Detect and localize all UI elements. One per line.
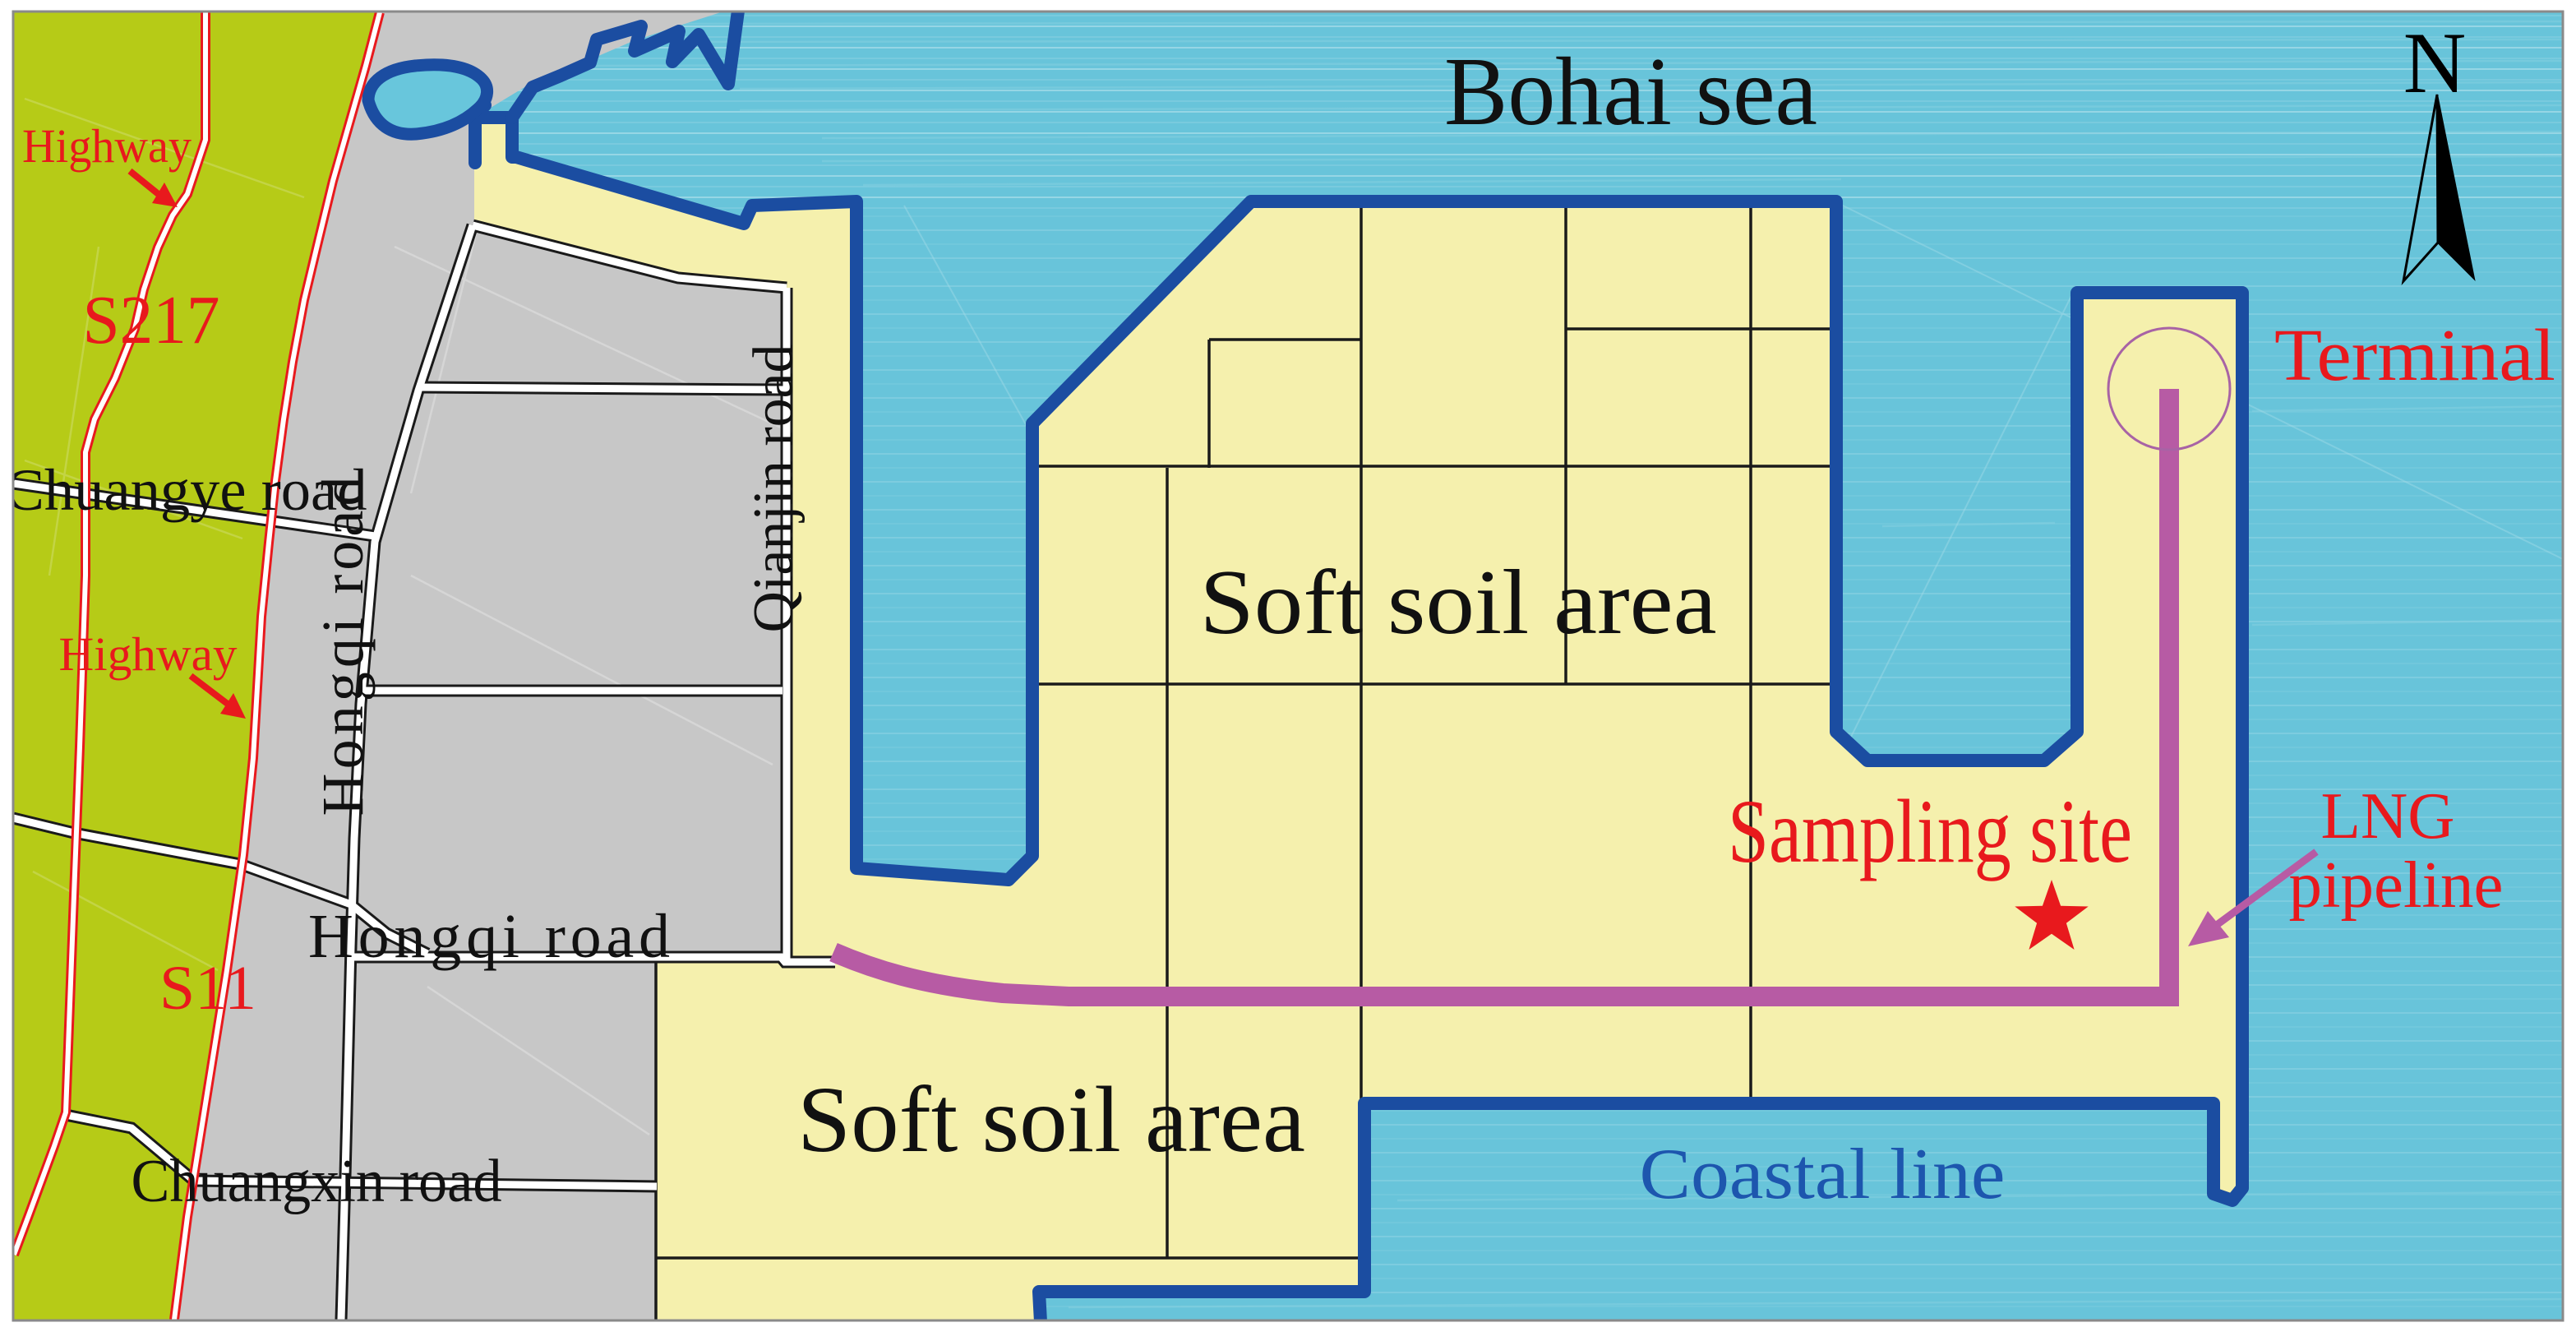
svg-text:Soft soil area: Soft soil area — [797, 1067, 1305, 1172]
svg-text:S217: S217 — [83, 282, 220, 358]
svg-text:Highway: Highway — [59, 627, 238, 681]
svg-text:Hongqi road: Hongqi road — [310, 477, 376, 816]
svg-text:Soft soil area: Soft soil area — [1200, 552, 1717, 654]
svg-text:Coastal line: Coastal line — [1640, 1135, 2006, 1214]
svg-text:Hongqi road: Hongqi road — [308, 902, 670, 971]
svg-text:S11: S11 — [159, 954, 256, 1023]
svg-text:Qianjin road: Qianjin road — [742, 344, 806, 633]
svg-text:N: N — [2403, 15, 2467, 111]
svg-text:Highway: Highway — [22, 119, 192, 173]
svg-text:Sampling site: Sampling site — [1728, 781, 2132, 881]
svg-text:Terminal: Terminal — [2274, 315, 2555, 396]
svg-text:pipeline: pipeline — [2289, 849, 2504, 922]
svg-text:Bohai sea: Bohai sea — [1444, 37, 1817, 146]
svg-text:Chuangxin road: Chuangxin road — [132, 1148, 502, 1215]
svg-text:LNG: LNG — [2321, 780, 2455, 853]
